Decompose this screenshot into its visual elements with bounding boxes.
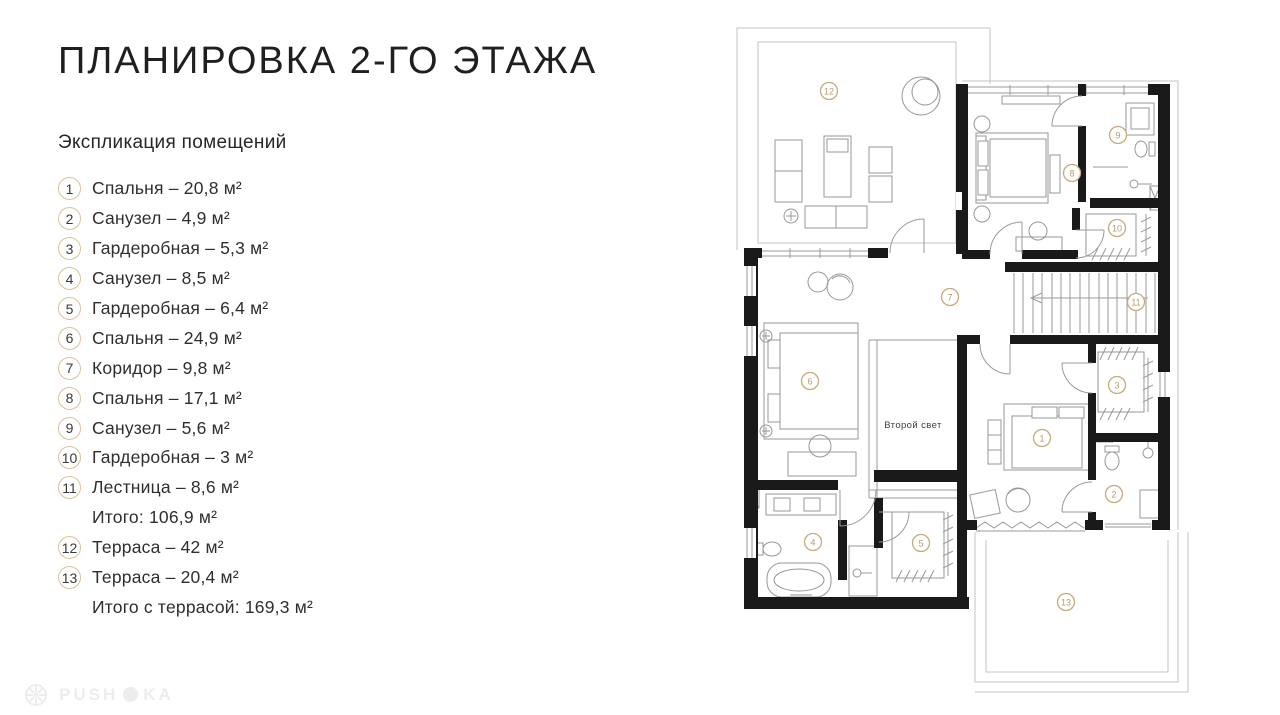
- legend-row-label: Коридор – 9,8 м²: [92, 358, 231, 379]
- shower-room: [849, 546, 877, 596]
- svg-text:11: 11: [1131, 298, 1140, 308]
- wheel-icon: [25, 684, 47, 706]
- room-marker-3: 3: [1109, 377, 1126, 394]
- legend-row: 1Спальня – 20,8 м²: [58, 174, 313, 204]
- legend-row-label: Санузел – 4,9 м²: [92, 208, 230, 229]
- room-marker-4: 4: [805, 534, 822, 551]
- room-marker-12: 12: [821, 83, 838, 100]
- terrace-13-outline: [975, 532, 1188, 692]
- brand-watermark: PUSHKA: [25, 684, 174, 706]
- legend-row-subtotal: Итого: 106,9 м²: [58, 503, 313, 533]
- legend-row: 6Спальня – 24,9 м²: [58, 323, 313, 353]
- legend-heading: Экспликация помещений: [58, 132, 287, 154]
- svg-text:6: 6: [807, 377, 812, 387]
- room-number-badge: [58, 596, 81, 619]
- room-number-badge: 11: [58, 476, 81, 499]
- dot-icon: [123, 687, 138, 702]
- legend-row: 7Коридор – 9,8 м²: [58, 353, 313, 383]
- svg-text:3: 3: [1114, 381, 1119, 391]
- room-marker-7: 7: [942, 289, 959, 306]
- legend-row: 10Гардеробная – 3 м²: [58, 443, 313, 473]
- room-number-badge: 7: [58, 357, 81, 380]
- room-number-badge: 2: [58, 207, 81, 230]
- room-number-badge: 9: [58, 417, 81, 440]
- svg-text:8: 8: [1069, 169, 1074, 179]
- svg-text:5: 5: [918, 539, 923, 549]
- svg-text:7: 7: [947, 293, 952, 303]
- legend-row-label: Санузел – 5,6 м²: [92, 418, 230, 439]
- legend-row-label: Санузел – 8,5 м²: [92, 268, 230, 289]
- legend-row-label: Терраса – 20,4 м²: [92, 567, 239, 588]
- watermark-text: PUSHKA: [59, 685, 174, 705]
- room-marker-9: 9: [1110, 127, 1127, 144]
- svg-text:2: 2: [1111, 490, 1116, 500]
- room-legend: 1Спальня – 20,8 м² 2Санузел – 4,9 м² 3Га…: [58, 174, 313, 622]
- legend-row: 9Санузел – 5,6 м²: [58, 413, 313, 443]
- legend-row-label: Терраса – 42 м²: [92, 537, 224, 558]
- subtotal-label: Итого: 106,9 м²: [92, 507, 217, 528]
- floor-plan: Второй свет: [730, 15, 1200, 705]
- bathroom-4-fixtures: [746, 486, 836, 608]
- svg-text:10: 10: [1112, 224, 1122, 234]
- legend-row: 3Гардеробная – 5,3 м²: [58, 234, 313, 264]
- legend-row-label: Гардеробная – 5,3 м²: [92, 238, 268, 259]
- legend-row: 11Лестница – 8,6 м²: [58, 473, 313, 503]
- svg-text:13: 13: [1061, 598, 1071, 608]
- room-number-badge: 13: [58, 566, 81, 589]
- terrace-furniture: [775, 77, 940, 228]
- legend-row: 8Спальня – 17,1 м²: [58, 383, 313, 413]
- total-label: Итого с террасой: 169,3 м²: [92, 597, 313, 618]
- watermark-text-left: PUSH: [59, 685, 118, 704]
- second-light-label: Второй свет: [884, 420, 942, 431]
- room-number-badge: 5: [58, 297, 81, 320]
- legend-row: 12Терраса – 42 м²: [58, 533, 313, 563]
- legend-row-label: Спальня – 24,9 м²: [92, 328, 242, 349]
- room-number-badge: 8: [58, 387, 81, 410]
- legend-row-total: Итого с террасой: 169,3 м²: [58, 592, 313, 622]
- svg-text:12: 12: [824, 87, 834, 97]
- room-number-badge: 6: [58, 327, 81, 350]
- svg-text:1: 1: [1039, 434, 1044, 444]
- room-marker-1: 1: [1034, 430, 1051, 447]
- room-marker-11: 11: [1128, 294, 1145, 311]
- room-marker-2: 2: [1106, 486, 1123, 503]
- bathroom-2-fixtures: [1097, 434, 1160, 530]
- room-marker-13: 13: [1058, 594, 1075, 611]
- legend-row-label: Спальня – 17,1 м²: [92, 388, 242, 409]
- room-number-badge: [58, 506, 81, 529]
- legend-row-label: Гардеробная – 3 м²: [92, 447, 253, 468]
- legend-row: 5Гардеробная – 6,4 м²: [58, 294, 313, 324]
- legend-row-label: Спальня – 20,8 м²: [92, 178, 242, 199]
- legend-row: 4Санузел – 8,5 м²: [58, 264, 313, 294]
- watermark-text-right: KA: [143, 685, 174, 704]
- room-marker-5: 5: [913, 535, 930, 552]
- bedroom-6-furniture: [760, 248, 868, 476]
- room-marker-8: 8: [1064, 165, 1081, 182]
- svg-text:4: 4: [810, 538, 815, 548]
- svg-text:9: 9: [1115, 131, 1120, 141]
- legend-row: 2Санузел – 4,9 м²: [58, 204, 313, 234]
- room-marker-6: 6: [802, 373, 819, 390]
- legend-row-label: Лестница – 8,6 м²: [92, 477, 239, 498]
- legend-row: 13Терраса – 20,4 м²: [58, 563, 313, 593]
- room-number-badge: 3: [58, 237, 81, 260]
- bathroom-9-fixtures: [1093, 103, 1160, 210]
- room-number-badge: 1: [58, 177, 81, 200]
- page: ПЛАНИРОВКА 2-ГО ЭТАЖА Экспликация помеще…: [0, 0, 1280, 715]
- legend-row-label: Гардеробная – 6,4 м²: [92, 298, 268, 319]
- room-number-badge: 12: [58, 536, 81, 559]
- page-title: ПЛАНИРОВКА 2-ГО ЭТАЖА: [58, 40, 597, 83]
- room-marker-10: 10: [1109, 220, 1126, 237]
- room-number-badge: 4: [58, 267, 81, 290]
- room-number-badge: 10: [58, 446, 81, 469]
